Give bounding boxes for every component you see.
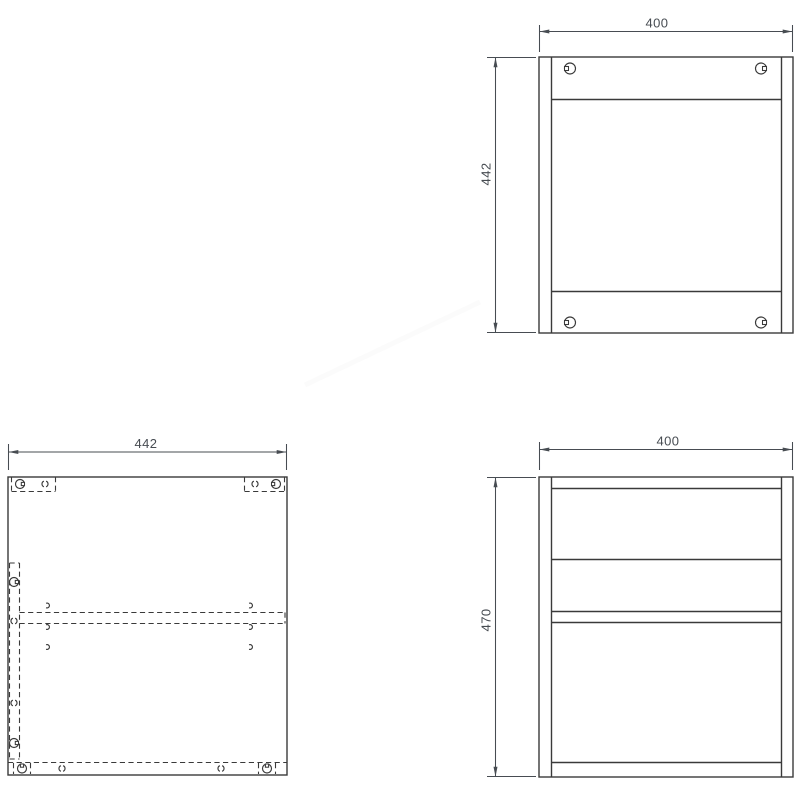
cam-fitting-icon [18, 764, 27, 773]
dowel-arc [42, 481, 44, 487]
hidden-shelf-band [20, 613, 286, 624]
cam-fitting-icon [10, 578, 19, 587]
screw-slot [763, 67, 767, 71]
hidden-top-right-fitting-box [245, 477, 285, 492]
dowel-arc [59, 766, 61, 772]
pilot-hole-icon [46, 603, 49, 608]
side-panel-view: 442 [8, 436, 287, 775]
dowel-hole-icon [11, 618, 17, 624]
dowel-arc [222, 766, 224, 772]
front-frame-outline [539, 477, 793, 777]
dowel-arc [46, 481, 48, 487]
screw-icon [756, 63, 767, 74]
cam-notch [272, 482, 275, 485]
dimension-back-height: 442 [479, 58, 537, 333]
pilot-hole-icon [249, 603, 252, 608]
pilot-hole-icon [46, 625, 49, 630]
dowel-hole-icon [11, 700, 17, 706]
cam-notch [21, 482, 24, 485]
pilot-hole-icon [46, 645, 49, 650]
dowel-arc [218, 766, 220, 772]
cam-notch [15, 580, 18, 583]
dowel-arc [252, 481, 254, 487]
cam-fitting-icon [272, 480, 281, 489]
screw-slot [763, 321, 767, 325]
cam-notch [20, 764, 23, 767]
dowel-arc [15, 700, 17, 706]
pilot-hole-icon [249, 625, 252, 630]
screw-icon [565, 317, 576, 328]
screw-slot [565, 67, 569, 71]
screw-icon [565, 63, 576, 74]
dowel-hole-icon [59, 766, 65, 772]
dowel-arc [11, 700, 13, 706]
cam-fitting-icon [16, 480, 25, 489]
screw-slot [565, 321, 569, 325]
cam-fitting-icon [263, 764, 272, 773]
dimension-label: 400 [657, 434, 680, 449]
dowel-arc [256, 481, 258, 487]
front-frame-view: 400 470 [479, 434, 794, 778]
hidden-bottom-rail [8, 763, 287, 775]
technical-drawing-canvas: 400 442 [0, 0, 800, 800]
hidden-top-left-fitting-box [12, 477, 56, 492]
dimension-label: 400 [646, 16, 669, 31]
dimension-label: 470 [479, 609, 494, 632]
dimension-front-height: 470 [479, 478, 537, 777]
dimension-label: 442 [135, 436, 158, 451]
dimension-label: 442 [479, 163, 494, 186]
screw-icon [756, 317, 767, 328]
hidden-left-rail-strip [10, 563, 20, 759]
dimension-side-width: 442 [9, 436, 287, 470]
dowel-arc [11, 618, 13, 624]
dowel-hole-icon [218, 766, 224, 772]
cam-notch [265, 764, 268, 767]
watermark-line [305, 302, 480, 385]
dowel-arc [63, 766, 65, 772]
dimension-back-width: 400 [540, 16, 793, 53]
cam-fitting-icon [10, 739, 19, 748]
dimension-front-width: 400 [540, 434, 793, 471]
cam-notch [15, 741, 18, 744]
back-panel-view: 400 442 [479, 16, 794, 334]
dowel-hole-icon [252, 481, 258, 487]
dowel-arc [15, 618, 17, 624]
pilot-hole-icon [249, 645, 252, 650]
dowel-hole-icon [42, 481, 48, 487]
